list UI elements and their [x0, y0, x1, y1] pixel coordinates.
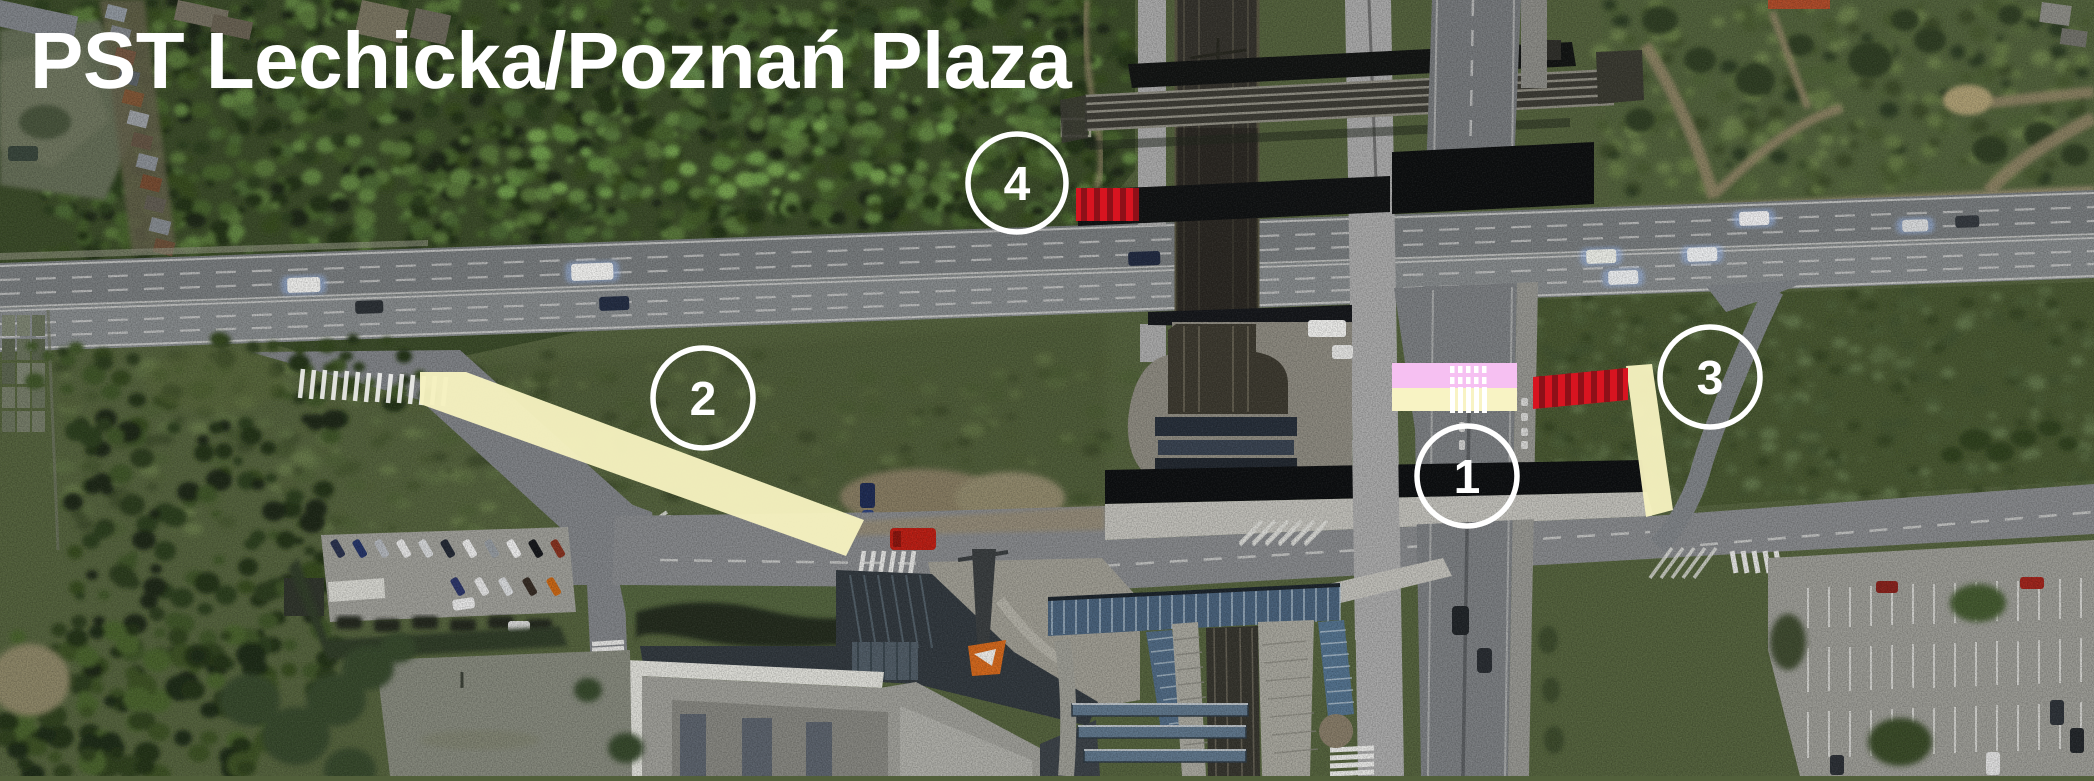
svg-text:1: 1	[1454, 451, 1481, 504]
svg-text:4: 4	[1004, 158, 1031, 211]
svg-text:PST Lechicka/Poznań Plaza: PST Lechicka/Poznań Plaza	[30, 16, 1072, 105]
svg-text:2: 2	[690, 373, 717, 426]
svg-text:3: 3	[1697, 352, 1724, 405]
